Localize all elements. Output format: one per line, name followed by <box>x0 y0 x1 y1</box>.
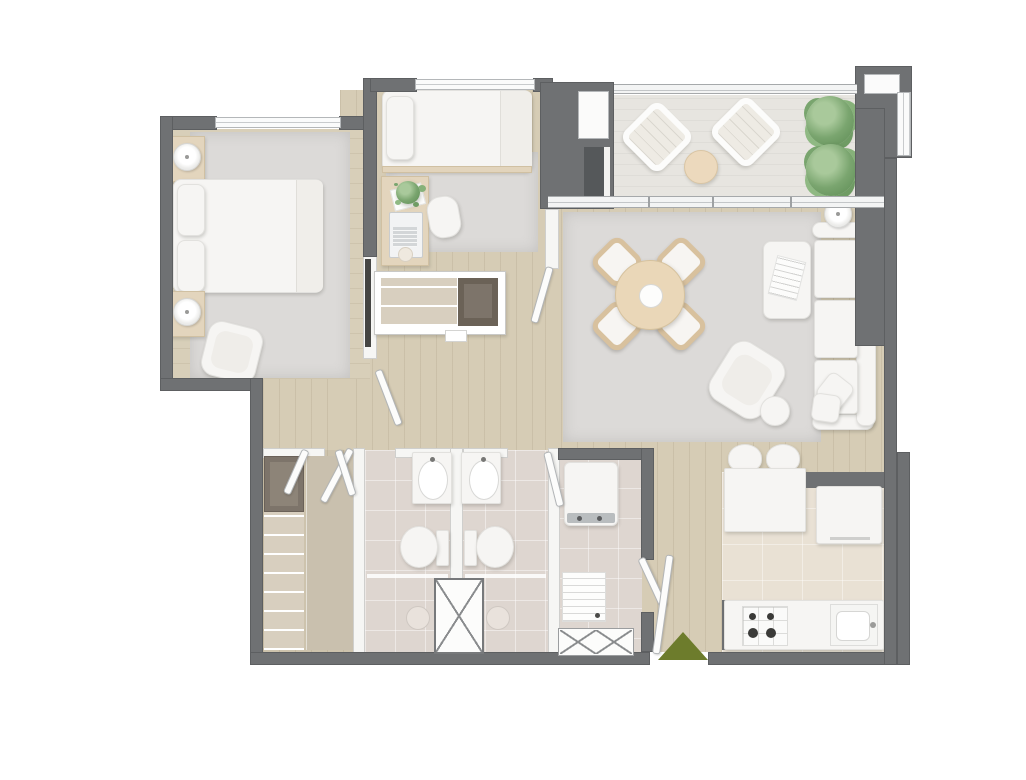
slider-mullion-1 <box>648 197 650 207</box>
pillow-1 <box>177 184 205 236</box>
wardrobe-cabinet <box>458 278 498 326</box>
terrace-sliding-doors <box>548 196 884 208</box>
single-bed-pillow <box>386 96 414 160</box>
wardrobe-shelves <box>381 278 457 326</box>
bedroom2-window <box>415 79 535 90</box>
column-window-opening <box>864 74 900 94</box>
wall-bottom-right <box>708 652 910 665</box>
toilet2-bowl <box>476 526 514 568</box>
bathroom1-faucet <box>430 457 435 462</box>
lamp-top-icon <box>173 143 201 171</box>
burner-4 <box>766 628 776 638</box>
tray-drain-dot <box>595 613 600 618</box>
shower2-drain <box>486 606 510 630</box>
wall-terrace-right <box>855 108 885 346</box>
wall-laundry-top <box>558 448 654 460</box>
wall-master-bottom <box>160 378 263 391</box>
wall-bedrooms-divider <box>363 78 377 257</box>
laundry-drain-tray <box>562 572 606 622</box>
toilet1-bowl <box>400 526 438 568</box>
breakfast-bar <box>724 468 806 532</box>
slider-mullion-2 <box>712 197 714 207</box>
hall-living-low-wall <box>545 209 559 269</box>
wardrobe-unit <box>374 271 506 335</box>
burner-2 <box>767 613 774 620</box>
cooktop <box>742 606 788 646</box>
laptop-keyboard <box>393 227 417 247</box>
bathroom2-basin <box>469 460 499 500</box>
wall-left <box>160 116 173 391</box>
terrace-plant-upper-icon <box>806 96 854 146</box>
magazine <box>768 255 807 301</box>
kitchen-sink <box>830 604 878 646</box>
terrace-structure-niche <box>578 91 609 139</box>
lamp-bottom-icon <box>173 298 201 326</box>
single-bed-fold <box>500 91 532 171</box>
right-side-window <box>897 92 911 156</box>
burner-3 <box>748 628 758 638</box>
bathroom1-vanity <box>412 452 452 504</box>
pencil-cup <box>398 247 413 262</box>
bathroom2-vanity <box>461 452 501 504</box>
elevator-shaft <box>434 578 484 654</box>
desk-plant-icon <box>396 181 420 204</box>
grate-cell-2 <box>596 630 632 654</box>
ottoman-table <box>763 241 811 319</box>
wall-bedroom2-top-left <box>370 78 417 92</box>
grate-cell-1 <box>560 630 596 654</box>
terrace-plant-lower-icon <box>806 144 856 196</box>
grill-niche-frame <box>604 147 610 203</box>
sofa-seat-2 <box>814 300 858 358</box>
washer-dot-1 <box>577 516 582 521</box>
washing-machine <box>564 462 618 526</box>
master-bedroom-window <box>215 117 341 128</box>
armchair-cushion <box>209 329 255 375</box>
wall-right <box>884 158 897 665</box>
wall-kitchen-right <box>897 452 910 665</box>
dining-table <box>615 260 685 330</box>
bathroom1-basin <box>418 460 448 500</box>
pillow-2 <box>177 240 205 292</box>
shower1-drain <box>406 606 430 630</box>
refrigerator <box>816 486 882 544</box>
slider-mullion-3 <box>790 197 792 207</box>
table-centerpiece <box>639 284 663 308</box>
closet-shelves <box>264 512 304 650</box>
tv-panel <box>365 259 371 347</box>
washer-vent-band <box>567 513 615 523</box>
sink-basin <box>836 611 870 641</box>
sofa-cushion-2 <box>810 392 842 424</box>
bathroom2-faucet <box>481 457 486 462</box>
wardrobe-tab <box>445 330 467 342</box>
refrigerator-handle <box>830 537 870 540</box>
terrace-railing <box>614 84 857 94</box>
laundry-floor-grate <box>558 628 634 656</box>
washer-dot-2 <box>597 516 602 521</box>
floor-plan <box>0 0 1026 780</box>
sink-faucet <box>870 622 876 628</box>
terrace-round-table <box>684 150 718 184</box>
sofa-seat-1 <box>814 240 858 298</box>
burner-1 <box>749 613 756 620</box>
wardrobe-cabinet-inner <box>464 284 492 318</box>
entrance-arrow-icon <box>658 632 708 660</box>
wall-closet-left <box>250 378 263 665</box>
living-side-table <box>760 396 790 426</box>
bed-frame-edge <box>382 166 532 173</box>
wall-laundry-right <box>641 448 654 560</box>
bathroom1-left-wall <box>353 448 365 654</box>
hallway-floor-lower <box>263 379 342 452</box>
bed-blanket-fold <box>296 180 323 292</box>
